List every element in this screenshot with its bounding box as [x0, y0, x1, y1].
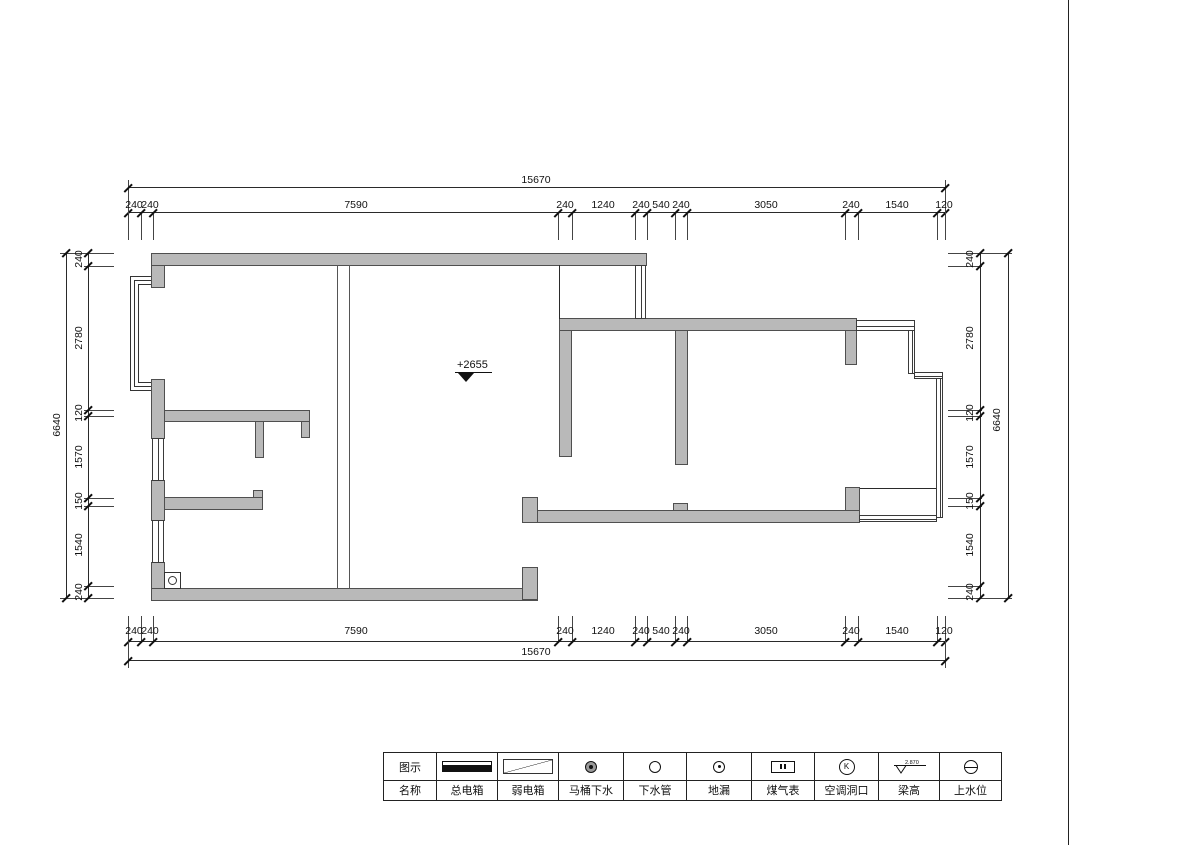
wall-mid-horizontal [559, 318, 857, 331]
wall-top [151, 253, 647, 266]
extension-line [675, 214, 676, 240]
gas-meter-icon [771, 761, 795, 773]
legend-item: 总电箱 [436, 753, 497, 800]
legend-item-name: 空调洞口 [815, 780, 878, 799]
wall-interior-h2-hook [253, 490, 263, 498]
dim-label-bottom: 240 [125, 625, 143, 637]
legend-item: 马桶下水 [558, 753, 623, 800]
dim-line-top-segments [128, 212, 945, 213]
legend-item-symbol [687, 753, 751, 780]
extension-line [647, 214, 648, 240]
dim-label-top: 240 [125, 199, 143, 211]
legend-item-symbol [498, 753, 558, 780]
extension-line [153, 214, 154, 240]
dim-label-bottom: 120 [935, 625, 953, 637]
dim-line-left-overall [66, 253, 67, 598]
water-supply-level-icon [964, 760, 978, 774]
drain-pipe-icon [649, 761, 661, 773]
legend-item-symbol [624, 753, 686, 780]
beam-height-icon: 2.870 [889, 758, 929, 775]
window-left-2 [152, 520, 164, 563]
dim-label-left: 120 [73, 404, 85, 422]
dim-label-top-overall: 15670 [521, 174, 550, 186]
legend-table: 图示 名称 总电箱 弱电箱 马桶下水 下水管 地漏 煤气表K 空调洞口2.870… [383, 752, 1002, 801]
dim-label-top: 7590 [344, 199, 367, 211]
legend-item: 地漏 [686, 753, 751, 800]
wall-interior-h1 [164, 410, 310, 422]
dim-line-left-segments [88, 253, 89, 598]
window-top-right [635, 265, 646, 319]
drawing-sheet: +2655 2402407590240124024054024030502401… [0, 0, 1200, 845]
wall-vertical-center [675, 330, 688, 465]
dim-label-bottom: 1540 [885, 625, 908, 637]
wall-interior-h1-return [301, 421, 310, 438]
dim-label-bottom: 3050 [754, 625, 777, 637]
dim-label-left-overall: 6640 [51, 413, 63, 436]
dim-label-top: 120 [935, 199, 953, 211]
legend-header-column: 图示 名称 [384, 753, 436, 800]
extension-line [128, 214, 129, 240]
wall-interior-h1-branch [255, 421, 264, 458]
extension-line [572, 214, 573, 240]
legend-item-symbol [752, 753, 814, 780]
legend-item-name: 煤气表 [752, 780, 814, 799]
dim-label-right: 1540 [964, 533, 976, 556]
dim-label-right: 2780 [964, 326, 976, 349]
extension-line [558, 214, 559, 240]
balcony-inner-line [860, 488, 936, 489]
dim-label-bottom: 7590 [344, 625, 367, 637]
bay-window-line [138, 284, 151, 383]
window-ne-horizontal [856, 320, 915, 331]
dim-label-top: 240 [672, 199, 690, 211]
dim-label-top: 540 [652, 199, 670, 211]
legend-item: K 空调洞口 [814, 753, 878, 800]
legend-item-name: 梁高 [879, 780, 939, 799]
extension-line [945, 641, 946, 668]
wall-left-top-stub [151, 265, 165, 288]
wall-left-a [151, 379, 165, 439]
legend-header-symbol: 图示 [384, 753, 436, 780]
wall-interior-h2 [164, 497, 263, 510]
wall-left-b [151, 480, 165, 521]
extension-line [945, 214, 946, 240]
legend-item-name: 地漏 [687, 780, 751, 799]
dim-label-bottom: 240 [632, 625, 650, 637]
dim-label-bottom: 240 [141, 625, 159, 637]
legend-item-name: 下水管 [624, 780, 686, 799]
window-left-1 [152, 438, 164, 481]
elevation-triangle-icon [458, 373, 474, 382]
dim-line-right-segments [980, 253, 981, 598]
dim-label-left: 2780 [73, 326, 85, 349]
main-electric-box-icon [442, 761, 492, 772]
legend-header-name: 名称 [384, 780, 436, 799]
legend-item: 煤气表 [751, 753, 814, 800]
legend-item-name: 弱电箱 [498, 780, 558, 799]
legend-item: 2.870 梁高 [878, 753, 939, 800]
dim-label-right: 240 [964, 250, 976, 268]
legend-item: 上水位 [939, 753, 1001, 800]
legend-item-symbol: 2.870 [879, 753, 939, 780]
extension-line [858, 214, 859, 240]
dim-label-right: 120 [964, 404, 976, 422]
legend-item-name: 马桶下水 [559, 780, 623, 799]
dim-label-right: 150 [964, 492, 976, 510]
dim-label-right: 1570 [964, 445, 976, 468]
dim-label-left: 1570 [73, 445, 85, 468]
dim-label-left: 1540 [73, 533, 85, 556]
extension-line [937, 214, 938, 240]
wall-bottom-right [537, 510, 860, 523]
wall-bump-bottom [673, 503, 688, 511]
legend-item-name: 上水位 [940, 780, 1001, 799]
wall-vertical-center-left [559, 330, 572, 457]
dim-label-bottom: 240 [842, 625, 860, 637]
dim-label-bottom: 240 [672, 625, 690, 637]
extension-line [845, 214, 846, 240]
legend-item-symbol: K [815, 753, 878, 780]
drain-symbol-box [164, 572, 181, 589]
dim-label-right: 240 [964, 583, 976, 601]
dim-label-bottom-overall: 15670 [521, 646, 550, 658]
dim-line-top-overall [128, 187, 945, 188]
wall-bottom-left [151, 588, 538, 601]
wall-step-lower [522, 567, 538, 600]
dim-label-bottom: 1240 [591, 625, 614, 637]
ac-hole-icon: K [839, 759, 855, 775]
dim-label-top: 240 [556, 199, 574, 211]
dim-label-top: 3050 [754, 199, 777, 211]
dim-label-top: 240 [632, 199, 650, 211]
legend-item-symbol [940, 753, 1001, 780]
weak-electric-box-icon [503, 759, 553, 774]
dim-label-left: 240 [73, 583, 85, 601]
extension-line [141, 214, 142, 240]
legend-item-name: 总电箱 [437, 780, 497, 799]
title-block: 红牛装饰 N CLIENT DESIGN FIRM 南京红牛装饰 PROJECT… [1068, 0, 1200, 845]
dim-label-bottom: 240 [556, 625, 574, 637]
window-se-sill [859, 515, 937, 522]
dim-label-top: 1240 [591, 199, 614, 211]
extension-line [687, 214, 688, 240]
dim-line-bottom-segments [128, 641, 945, 642]
extension-line [128, 641, 129, 668]
dim-label-top: 1540 [885, 199, 908, 211]
legend-item: 弱电箱 [497, 753, 558, 800]
dim-label-left: 150 [73, 492, 85, 510]
wall-stub-bottom-right [845, 487, 860, 511]
legend-item-symbol [437, 753, 497, 780]
room-boundary-line [559, 265, 560, 319]
dim-label-left: 240 [73, 250, 85, 268]
window-east [936, 378, 943, 518]
wall-mid-stub-down [845, 330, 857, 365]
thin-partition [337, 265, 350, 589]
elevation-note: +2655 [455, 359, 492, 373]
legend-item-symbol [559, 753, 623, 780]
dim-label-bottom: 540 [652, 625, 670, 637]
toilet-drain-icon [585, 761, 597, 773]
extension-line [635, 214, 636, 240]
dim-label-right-overall: 6640 [991, 408, 1003, 431]
dim-label-top: 240 [842, 199, 860, 211]
dim-line-right-overall [1008, 253, 1009, 598]
floor-drain-icon [713, 761, 725, 773]
dim-label-top: 240 [141, 199, 159, 211]
window-ne-vertical [908, 330, 915, 374]
legend-item: 下水管 [623, 753, 686, 800]
dim-line-bottom-overall [128, 660, 945, 661]
drain-circle-icon [168, 576, 177, 585]
wall-step-upper [522, 497, 538, 523]
